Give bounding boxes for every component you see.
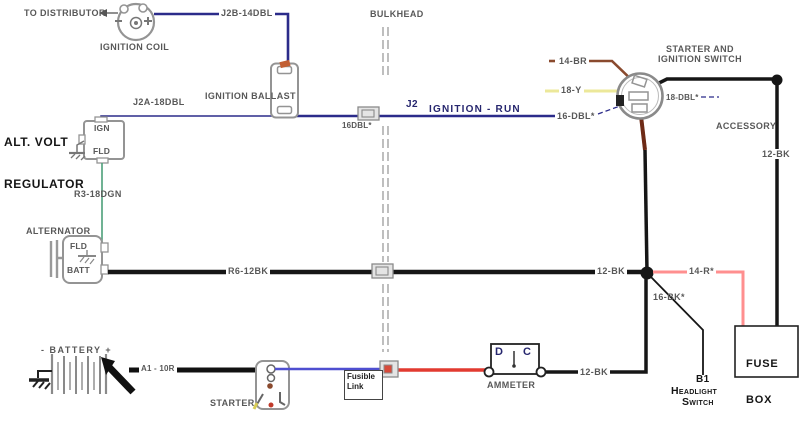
wire-16dbl-dash [598, 106, 620, 114]
regulator-fld-label: FLD [93, 146, 110, 156]
wire-label-12bk-ammeter: 12-BK [578, 367, 610, 377]
ignition-ballast-symbol [271, 60, 298, 118]
wiring-diagram: TO DISTRIBUTOR IGNITION COIL J2B-14DBL B… [0, 0, 800, 425]
wire-label-18dbl: 18-DBL* [666, 93, 699, 103]
ammeter-out-wire [546, 276, 646, 372]
alternator-fld-label: FLD [70, 241, 87, 251]
alternator-label: ALTERNATOR [26, 226, 91, 236]
bulkhead-connector-mid [372, 264, 393, 278]
accessory-junction-dot [772, 75, 783, 86]
to-distributor-label: TO DISTRIBUTOR [24, 8, 106, 18]
ammeter-label: AMMETER [487, 380, 535, 390]
wire-label-14br: 14-BR [557, 56, 589, 66]
battery-ground-icon [29, 371, 52, 389]
ignition-coil-label: IGNITION COIL [100, 42, 169, 52]
starter-relay-label-line1: STARTER [210, 398, 255, 409]
wire-label-j2a: J2A-18DBL [133, 97, 185, 107]
regulator-title-line1: ALT. VOLT [4, 135, 84, 149]
bulkhead-connector-top [358, 107, 379, 120]
regulator-title-line2: REGULATOR [4, 177, 84, 191]
wire-label-j2b: J2B-14DBL [219, 8, 275, 18]
wire-label-18y: 18-Y [559, 85, 584, 95]
wire-label-16dbl: 16-DBL* [555, 111, 597, 121]
relay-pin-red-tip [269, 403, 274, 408]
accessory-label: ACCESSORY [716, 121, 776, 131]
bulkhead-label: BULKHEAD [370, 9, 424, 19]
battery-symbol [52, 354, 106, 394]
starter-relay-label: STARTER RELAY [210, 376, 255, 425]
ignition-coil-symbol [115, 4, 154, 40]
ammeter-symbol [485, 344, 546, 377]
ammeter-right-terminal [537, 368, 546, 377]
fusible-link-label-line2: Link [347, 382, 380, 392]
wire-label-12bk-main: 12-BK [595, 266, 627, 276]
ignition-ballast-label: IGNITION BALLAST [205, 91, 296, 101]
ammeter-c-label: C [523, 347, 531, 357]
wire-label-ignition-run: IGNITION - RUN [429, 105, 521, 115]
alternator-batt-label: BATT [67, 265, 90, 275]
regulator-ign-label: IGN [94, 123, 110, 133]
switch-column-maroon [641, 116, 645, 150]
fuse-box-label-line1: FUSE [746, 358, 779, 370]
wire-j2a [101, 116, 283, 122]
fusible-link-label-line1: Fusible [347, 372, 380, 382]
fusible-link-label: Fusible Link [344, 370, 383, 400]
wire-label-16dbl-bulkhead: 16DBL* [342, 121, 372, 131]
switch-column-wire [645, 150, 647, 272]
b1-label: B1 [696, 375, 710, 385]
bulkhead-line [383, 27, 388, 352]
accessory-wire [651, 79, 777, 87]
regulator-title: ALT. VOLT REGULATOR [4, 107, 84, 219]
battery-label: - BATTERY + [41, 345, 112, 355]
fuse-box-label-line2: BOX [746, 394, 779, 406]
alternator-pulley [51, 240, 63, 278]
wire-j2b [154, 14, 288, 64]
wire-label-a1: A1 - 10R [139, 364, 177, 374]
ignition-switch-title-line1: STARTER AND [652, 44, 748, 54]
wire-label-12bk-accessory: 12-BK [760, 149, 792, 159]
headlight-switch-label-line2: Switch [682, 397, 714, 407]
ammeter-left-terminal [485, 368, 494, 377]
wire-label-r6: R6-12BK [226, 266, 270, 276]
switch-terminal-block [616, 95, 624, 106]
wire-label-16bk: 16-BK* [653, 292, 685, 302]
ignition-switch-title: STARTER AND IGNITION SWITCH [652, 44, 748, 64]
ammeter-d-label: D [495, 347, 503, 357]
fuse-box-label: FUSE BOX [746, 334, 779, 425]
wire-label-j2: J2 [406, 100, 418, 110]
ignition-switch-symbol [616, 74, 663, 119]
wire-label-r3: R3-18DGN [74, 189, 122, 199]
headlight-switch-label-line1: Headlight [671, 386, 717, 396]
wire-label-14r: 14-R* [687, 266, 716, 276]
ignition-switch-title-line2: IGNITION SWITCH [652, 54, 748, 64]
wire-r3-green [101, 163, 102, 250]
